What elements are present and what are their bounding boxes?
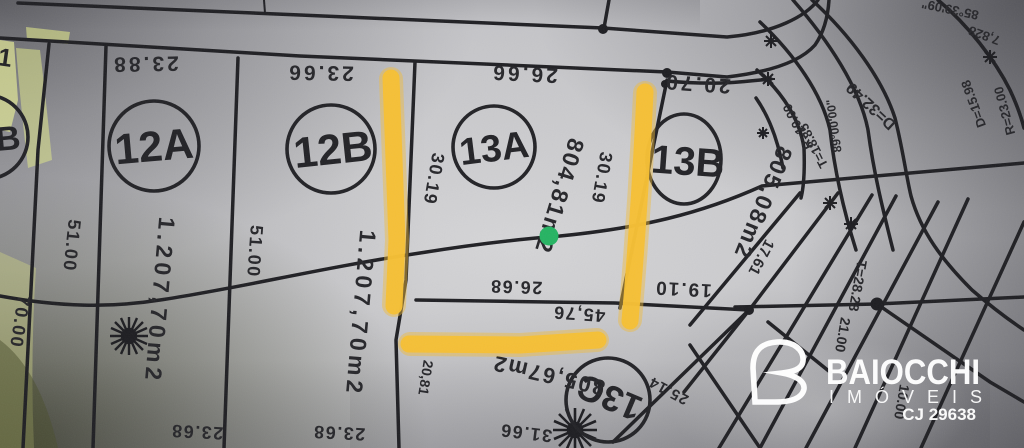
svg-text:IMÓVEIS: IMÓVEIS — [829, 386, 995, 407]
svg-text:CJ 29638: CJ 29638 — [902, 405, 976, 424]
